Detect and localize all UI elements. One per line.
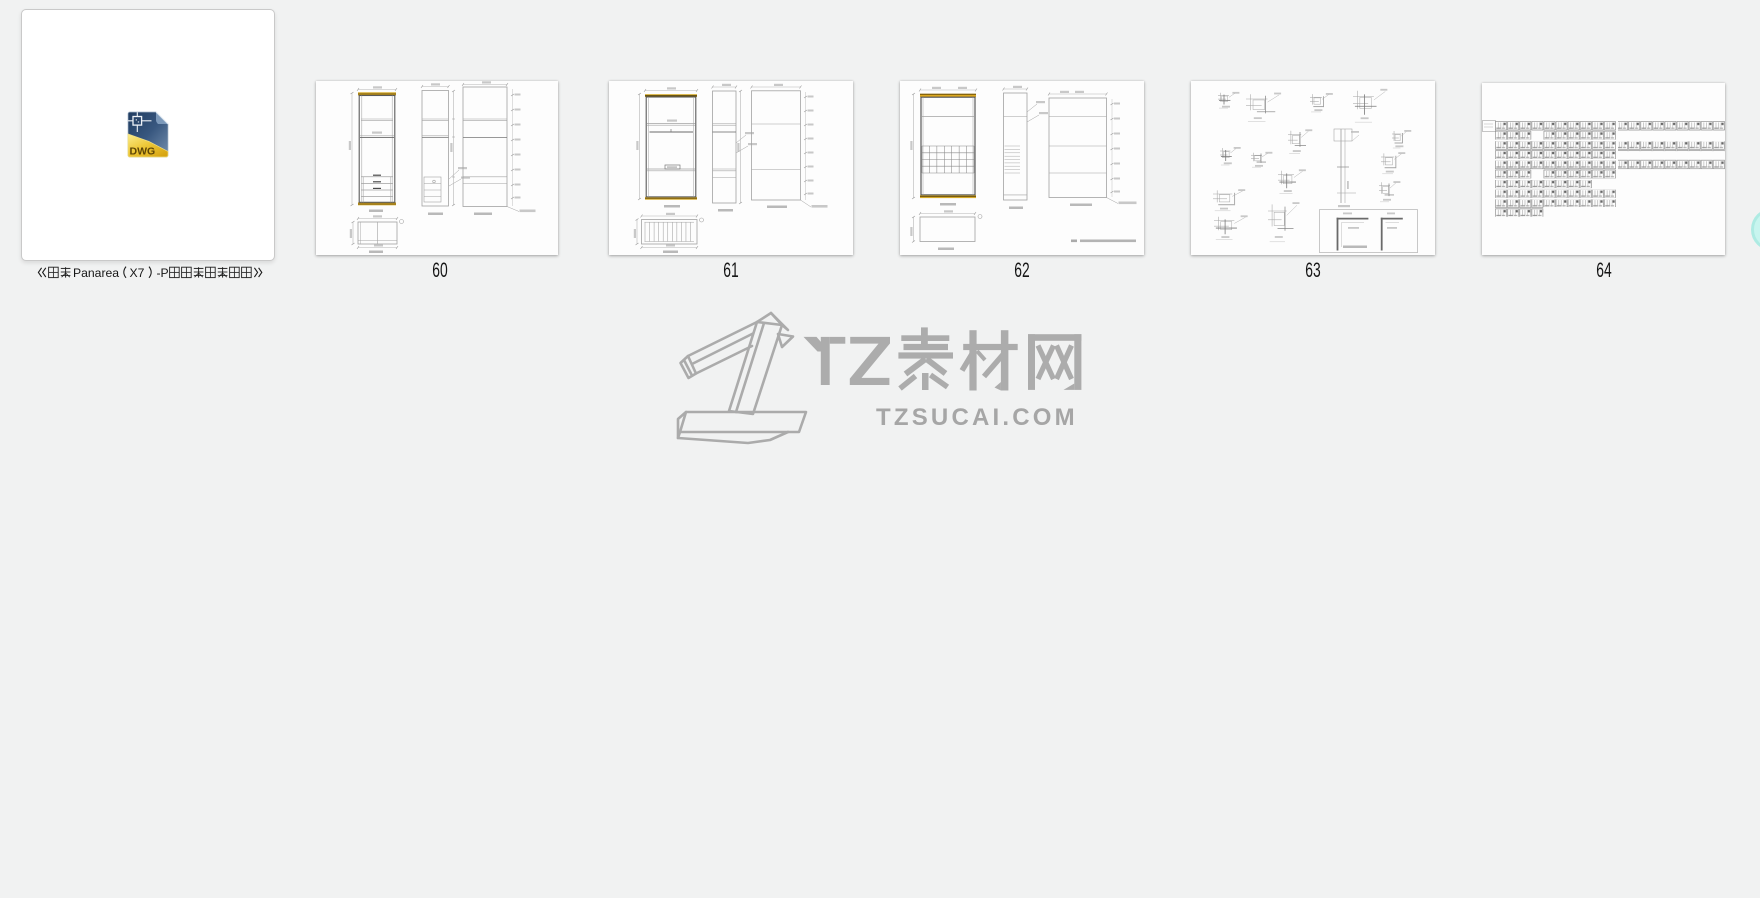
svg-text:DWG: DWG	[130, 146, 156, 158]
svg-text:Panarea: Panarea	[73, 266, 119, 280]
svg-text:-P: -P	[157, 266, 169, 280]
svg-text:X7: X7	[130, 266, 145, 280]
